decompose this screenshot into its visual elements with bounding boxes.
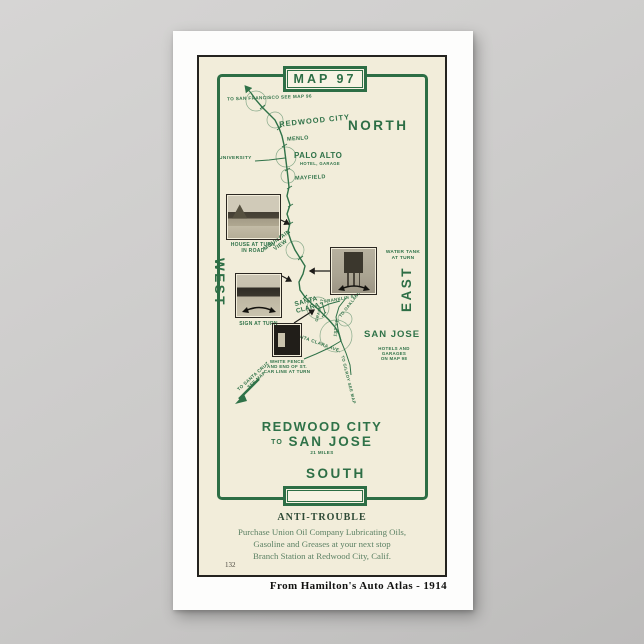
university-label: UNIVERSITY	[219, 156, 252, 161]
compass-north-label: NORTH	[348, 118, 409, 133]
san-jose-note-label: HOTELS AND GARAGES ON MAP 98	[369, 346, 419, 362]
map-card: MAP 97 NORTH SOUTH WEST EAST TO SAN FRAN…	[197, 55, 447, 577]
palo-alto-note-label: HOTEL, GARAGE	[300, 161, 340, 166]
poster-sheet: MAP 97 NORTH SOUTH WEST EAST TO SAN FRAN…	[173, 31, 473, 610]
compass-south-label: SOUTH	[306, 466, 366, 481]
map-title-line2: TO SAN JOSE	[239, 434, 405, 449]
attribution-line: From Hamilton's Auto Atlas - 1914	[197, 580, 447, 592]
compass-east-label: EAST	[399, 270, 413, 312]
map-number-label: MAP 97	[286, 69, 364, 89]
palo-alto-label: PALO ALTO	[294, 151, 342, 160]
water-tank-photo	[330, 247, 377, 295]
bottom-empty-box	[283, 486, 367, 506]
page-background: { "frame": { "map_label": "MAP 97" }, "c…	[0, 0, 644, 644]
sign-photo-arrow-icon	[240, 302, 278, 316]
water-tank-caption: WATER TANK AT TURN	[379, 250, 427, 261]
san-jose-label: SAN JOSE	[364, 329, 420, 340]
white-fence-photo	[272, 323, 302, 357]
map-title-miles: 21 MILES	[239, 450, 405, 455]
sign-photo	[235, 273, 282, 318]
map-number-box: MAP 97	[283, 66, 367, 92]
map-title-line1: REDWOOD CITY	[239, 419, 405, 434]
compass-west-label: WEST	[213, 258, 227, 300]
white-fence-caption: WHITE FENCE AND END OF ST. CAR LINE AT T…	[257, 359, 317, 375]
map-title-to: TO	[271, 439, 283, 446]
house-photo	[226, 194, 281, 240]
house-photo-caption: HOUSE AT TURN IN ROAD	[223, 243, 283, 255]
water-tank-photo-arrow-icon	[337, 281, 371, 293]
